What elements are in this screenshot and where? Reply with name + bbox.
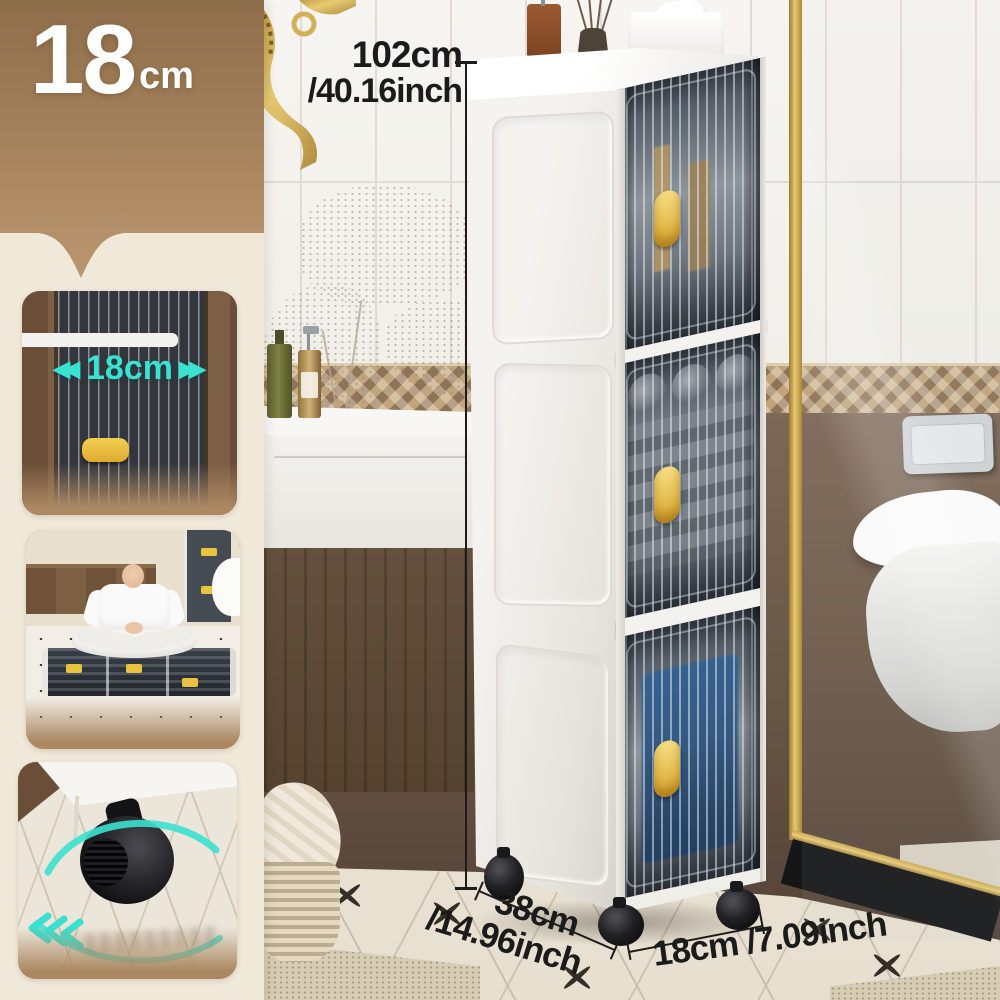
feature-sidebar: 18 cm ◀◀ 18cm ▶▶ bbox=[0, 0, 264, 1000]
toilet-flush-button bbox=[910, 423, 985, 466]
arrow-left-icon: ◀◀ bbox=[53, 356, 80, 382]
white-trim-band bbox=[22, 333, 178, 347]
pump-bottle-head bbox=[303, 326, 319, 334]
drawer-handle-bottom bbox=[654, 738, 680, 800]
vanity-drawer-groove bbox=[274, 456, 466, 458]
woven-basket bbox=[256, 862, 340, 962]
pump-bottle-stem bbox=[307, 334, 310, 350]
drawer-top bbox=[616, 57, 766, 352]
glass-partition-gold-frame bbox=[789, 0, 802, 840]
vanity-wood-cabinet bbox=[264, 548, 474, 792]
badge-unit: cm bbox=[139, 55, 194, 98]
width-badge: 18 cm bbox=[30, 6, 194, 114]
drawer-inner-frame bbox=[626, 615, 756, 890]
photo-fade bbox=[18, 927, 237, 979]
gold-handle bbox=[82, 438, 129, 462]
height-label: 102cm /40.16inch bbox=[300, 36, 462, 108]
panel-width-demo: ◀◀ 18cm ▶▶ bbox=[22, 291, 237, 515]
height-measure-line bbox=[465, 62, 467, 889]
gold-handle bbox=[66, 664, 82, 673]
side-panel-recess bbox=[492, 111, 614, 345]
floor-motif bbox=[870, 948, 904, 982]
drawer-handle-top bbox=[654, 188, 680, 250]
badge-value: 18 bbox=[30, 6, 135, 114]
photo-fade bbox=[22, 463, 237, 515]
cabinet-corner-post bbox=[616, 88, 625, 914]
drawer-inner-frame bbox=[626, 67, 756, 342]
side-panel-recess bbox=[496, 643, 610, 889]
product-image: 102cm /40.16inch 38cm /14.96inch 18cm /7… bbox=[0, 0, 1000, 1000]
cabinet-front-face bbox=[616, 57, 766, 914]
gold-handle bbox=[182, 678, 198, 687]
panel-foldable-demo bbox=[26, 530, 240, 749]
gold-handle bbox=[126, 664, 142, 673]
drawer-middle bbox=[616, 332, 766, 620]
cabinet-corner-post bbox=[760, 57, 766, 882]
cabinet-side-panel bbox=[466, 88, 624, 914]
height-inch-text: /40.16inch bbox=[300, 74, 462, 109]
height-cm-text: 102cm bbox=[300, 36, 462, 74]
side-panel-recess bbox=[494, 363, 612, 607]
person-head bbox=[122, 564, 144, 588]
person-hands bbox=[125, 622, 143, 634]
soap-dispenser bbox=[527, 4, 561, 58]
gold-bottle-label bbox=[301, 372, 318, 398]
vanity-drawer bbox=[264, 436, 476, 548]
photo-fade bbox=[26, 697, 240, 749]
width-demo-label: 18cm bbox=[86, 349, 173, 388]
panel-wheel-demo bbox=[18, 762, 237, 979]
drawer-inner-frame bbox=[626, 342, 756, 610]
width-callout: ◀◀ 18cm ▶▶ bbox=[22, 349, 237, 388]
arrow-right-icon: ▶▶ bbox=[179, 356, 206, 382]
soap-pump-stem bbox=[541, 0, 545, 6]
drawer-handle-middle bbox=[654, 464, 680, 526]
green-bottle bbox=[267, 344, 292, 418]
drawer-bottom bbox=[616, 605, 766, 900]
